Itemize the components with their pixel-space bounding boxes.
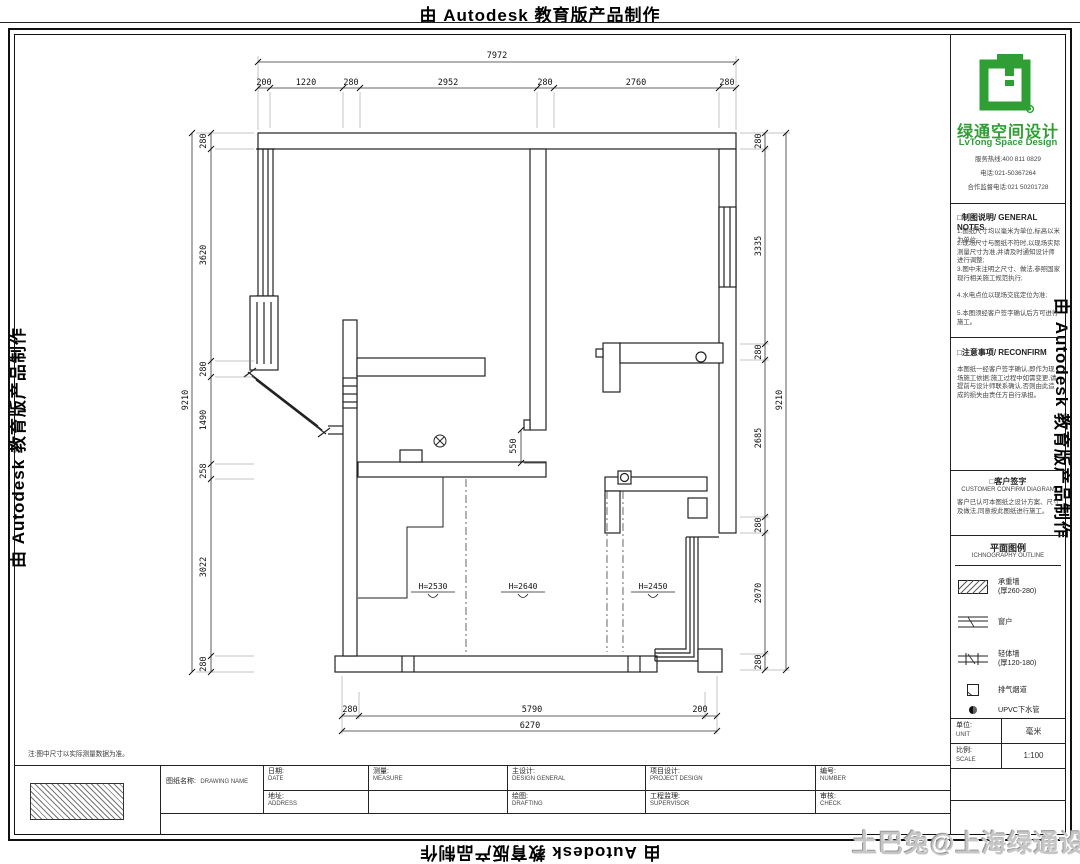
tubatu-watermark: 土巴兔@上海绿通设计 xyxy=(852,824,1080,860)
svg-text:258: 258 xyxy=(199,463,209,478)
svg-text:280: 280 xyxy=(754,517,764,532)
dim-opening: 550 xyxy=(509,438,519,453)
height-label: H=2450 xyxy=(639,582,668,591)
svg-text:3335: 3335 xyxy=(754,236,764,256)
svg-text:3022: 3022 xyxy=(199,557,209,577)
walls xyxy=(244,133,736,672)
svg-text:2952: 2952 xyxy=(438,78,458,88)
svg-text:280: 280 xyxy=(342,705,357,715)
dim-total-top: 7972 xyxy=(487,51,507,61)
svg-text:280: 280 xyxy=(199,656,209,671)
svg-text:5790: 5790 xyxy=(522,705,542,715)
dimension-lines xyxy=(192,62,786,731)
svg-text:280: 280 xyxy=(754,654,764,669)
svg-text:280: 280 xyxy=(719,78,734,88)
svg-text:280: 280 xyxy=(754,344,764,359)
dimension-extension-lines xyxy=(196,56,790,734)
height-label: H=2530 xyxy=(419,582,448,591)
floor-plan-svg: 7972 200 1220 280 2952 280 2760 280 9210… xyxy=(0,0,1080,864)
height-label: H=2640 xyxy=(509,582,538,591)
svg-text:2685: 2685 xyxy=(754,428,764,448)
pipe-symbol xyxy=(621,474,629,482)
dim-total-right: 9210 xyxy=(775,390,785,410)
svg-text:280: 280 xyxy=(343,78,358,88)
svg-text:1220: 1220 xyxy=(296,78,316,88)
ceiling-height-labels: H=2530 H=2640 H=2450 xyxy=(411,582,675,598)
svg-text:280: 280 xyxy=(199,361,209,376)
dim-total-bottom: 6270 xyxy=(520,721,540,731)
zone-dashed-lines xyxy=(466,479,623,652)
svg-text:280: 280 xyxy=(537,78,552,88)
svg-text:2070: 2070 xyxy=(754,583,764,603)
vent-symbol xyxy=(434,435,446,447)
upvc-pipe-symbol xyxy=(696,352,706,362)
svg-text:200: 200 xyxy=(692,705,707,715)
svg-text:1490: 1490 xyxy=(199,410,209,430)
dim-total-left: 9210 xyxy=(181,390,191,410)
svg-text:2760: 2760 xyxy=(626,78,646,88)
cad-sheet: 由 Autodesk 教育版产品制作 由 Autodesk 教育版产品制作 由 … xyxy=(0,0,1080,864)
svg-text:3620: 3620 xyxy=(199,245,209,265)
svg-text:280: 280 xyxy=(199,133,209,148)
svg-text:200: 200 xyxy=(256,78,271,88)
svg-text:280: 280 xyxy=(754,133,764,148)
